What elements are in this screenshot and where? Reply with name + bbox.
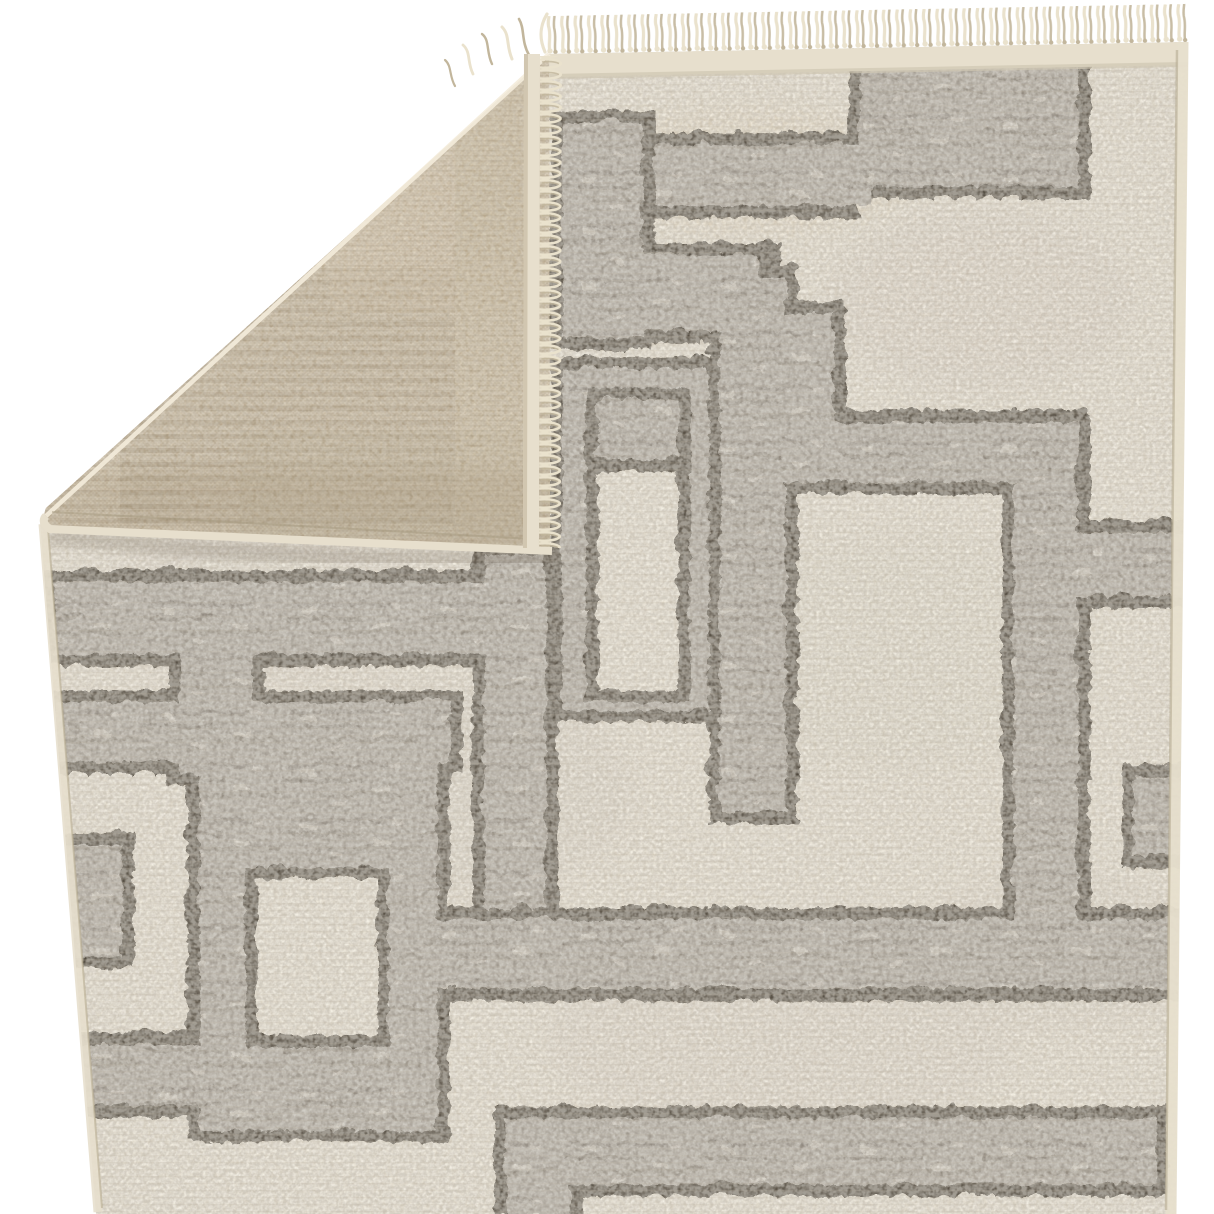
- product-photo: [0, 0, 1214, 1214]
- flap-fringed-edge: [523, 54, 562, 548]
- flap-fringe-loops: [537, 56, 562, 548]
- rug-photo: [0, 0, 1214, 1214]
